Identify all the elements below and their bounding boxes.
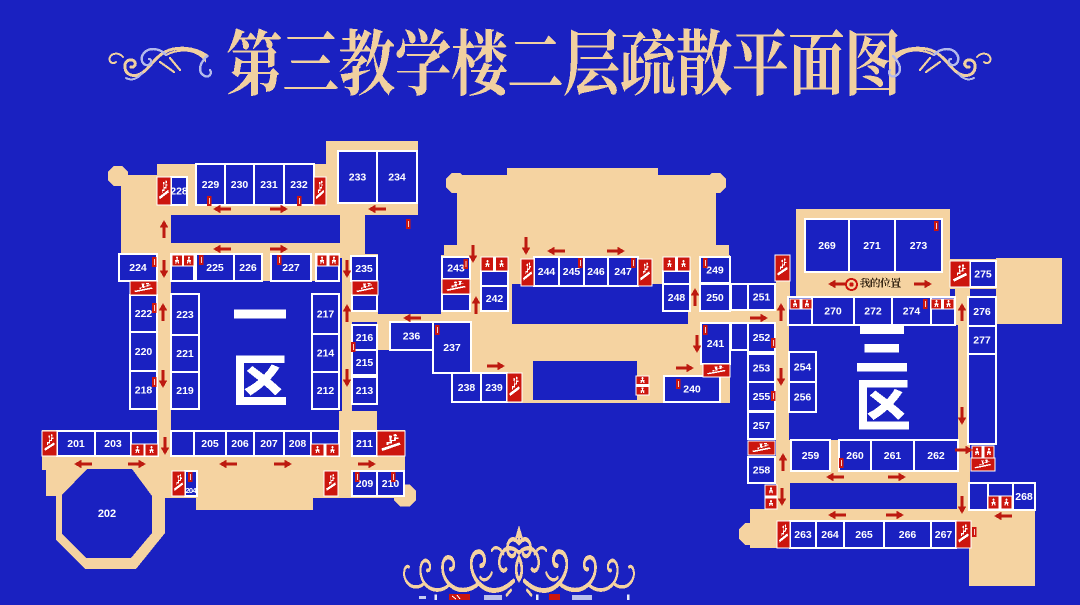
svg-text:220: 220 <box>135 346 153 358</box>
svg-text:223: 223 <box>176 309 194 321</box>
svg-text:273: 273 <box>910 240 928 252</box>
svg-text:215: 215 <box>356 357 374 369</box>
svg-text:262: 262 <box>927 450 945 462</box>
svg-text:204: 204 <box>186 486 198 495</box>
svg-text:205: 205 <box>201 438 219 450</box>
svg-text:217: 217 <box>317 309 335 321</box>
svg-text:239: 239 <box>485 382 503 394</box>
svg-text:213: 213 <box>356 385 374 397</box>
svg-text:264: 264 <box>821 529 839 541</box>
svg-text:241: 241 <box>707 338 725 350</box>
svg-text:254: 254 <box>794 362 812 374</box>
svg-text:231: 231 <box>260 179 278 191</box>
svg-text:208: 208 <box>289 438 307 450</box>
svg-text:237: 237 <box>443 342 461 354</box>
svg-text:275: 275 <box>974 269 992 281</box>
svg-text:268: 268 <box>1015 491 1033 503</box>
svg-text:266: 266 <box>899 529 917 541</box>
svg-text:269: 269 <box>818 240 836 252</box>
svg-text:256: 256 <box>794 392 812 404</box>
svg-text:228: 228 <box>170 186 188 198</box>
svg-text:267: 267 <box>935 529 953 541</box>
svg-text:207: 207 <box>260 438 278 450</box>
svg-text:244: 244 <box>538 266 556 278</box>
svg-text:230: 230 <box>231 179 249 191</box>
svg-text:249: 249 <box>706 265 724 277</box>
svg-text:251: 251 <box>753 292 771 304</box>
svg-text:261: 261 <box>884 450 902 462</box>
svg-text:211: 211 <box>356 438 373 450</box>
svg-text:253: 253 <box>753 363 771 375</box>
svg-text:277: 277 <box>973 335 991 347</box>
svg-text:206: 206 <box>231 438 249 450</box>
svg-text:222: 222 <box>135 308 153 320</box>
svg-text:221: 221 <box>176 348 194 360</box>
svg-text:234: 234 <box>388 172 406 184</box>
svg-text:274: 274 <box>903 306 921 318</box>
svg-text:247: 247 <box>614 266 632 278</box>
svg-text:216: 216 <box>356 332 374 344</box>
svg-text:202: 202 <box>98 508 116 520</box>
svg-text:246: 246 <box>587 266 605 278</box>
svg-text:201: 201 <box>67 438 85 450</box>
svg-text:212: 212 <box>317 385 335 397</box>
svg-text:276: 276 <box>973 306 991 318</box>
svg-text:235: 235 <box>355 263 373 275</box>
svg-text:218: 218 <box>135 385 153 397</box>
svg-text:238: 238 <box>458 382 476 394</box>
svg-text:252: 252 <box>753 332 771 344</box>
svg-text:242: 242 <box>486 293 504 305</box>
svg-text:225: 225 <box>206 262 224 274</box>
svg-text:240: 240 <box>683 384 701 396</box>
svg-text:214: 214 <box>317 348 335 360</box>
svg-text:272: 272 <box>864 306 882 318</box>
svg-text:227: 227 <box>282 262 300 274</box>
svg-text:243: 243 <box>447 263 465 275</box>
svg-text:265: 265 <box>855 529 873 541</box>
svg-text:226: 226 <box>239 262 257 274</box>
svg-text:270: 270 <box>824 306 842 318</box>
svg-text:233: 233 <box>349 172 367 184</box>
svg-text:248: 248 <box>668 292 686 304</box>
svg-text:255: 255 <box>753 391 771 403</box>
svg-text:224: 224 <box>129 262 147 274</box>
svg-text:232: 232 <box>290 179 308 191</box>
svg-text:229: 229 <box>202 179 220 191</box>
svg-text:250: 250 <box>706 292 724 304</box>
svg-text:245: 245 <box>563 266 581 278</box>
svg-text:263: 263 <box>794 529 812 541</box>
svg-text:260: 260 <box>846 450 864 462</box>
svg-text:236: 236 <box>403 331 421 343</box>
svg-text:258: 258 <box>753 465 771 477</box>
svg-text:271: 271 <box>863 240 881 252</box>
svg-text:257: 257 <box>753 420 771 432</box>
svg-text:219: 219 <box>176 385 194 397</box>
svg-text:210: 210 <box>382 478 400 490</box>
svg-text:259: 259 <box>802 450 820 462</box>
svg-text:203: 203 <box>104 438 122 450</box>
